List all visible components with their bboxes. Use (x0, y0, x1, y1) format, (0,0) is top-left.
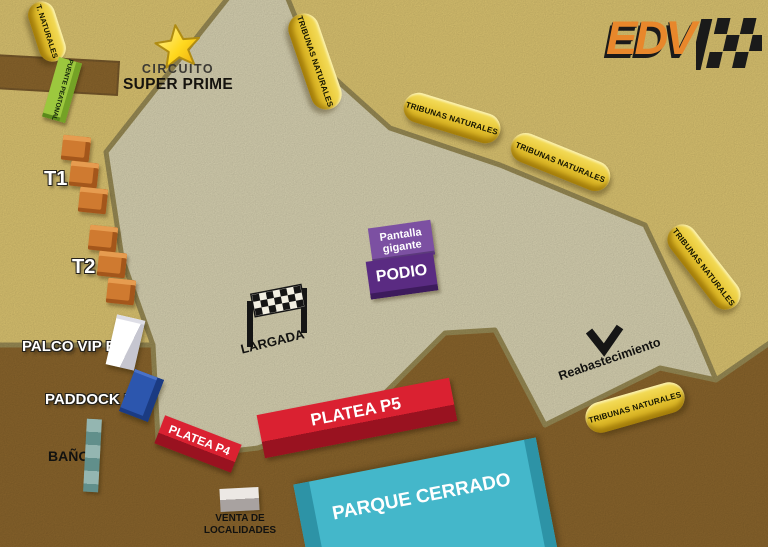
ticket-office-label: VENTA DE LOCALIDADES (203, 513, 277, 536)
barrier-cube (69, 161, 99, 189)
barrier-cube (88, 225, 118, 253)
ticket-office-box (219, 487, 259, 512)
checkered-logo-icon (696, 16, 762, 74)
circuit-map: CIRCUITO SUPER PRIME EDV T. NATURALES TR… (0, 0, 768, 547)
ticket-office-label-line2: LOCALIDADES (203, 525, 277, 537)
sector-t1-label: T1 (44, 168, 67, 191)
sector-t2-label: T2 (72, 256, 95, 279)
circuit-title: CIRCUITO SUPER PRIME (114, 62, 242, 94)
barrier-cube (61, 135, 91, 163)
parque-cerrado-label: PARQUE CERRADO (331, 469, 513, 525)
barrier-cube (106, 278, 136, 306)
circuit-title-line1: CIRCUITO (114, 62, 242, 76)
barrier-cube (97, 251, 127, 279)
podio-label: PODIO (375, 262, 429, 291)
ticket-office-label-line1: VENTA DE (203, 513, 277, 525)
edv-logo-text: EDV (606, 13, 694, 63)
barrier-cube (78, 187, 108, 215)
edv-logo: EDV (606, 13, 762, 74)
circuit-title-line2: SUPER PRIME (114, 76, 242, 94)
